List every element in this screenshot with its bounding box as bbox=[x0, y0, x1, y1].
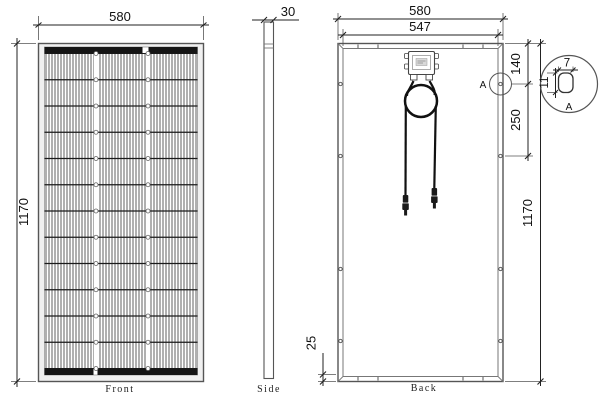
mounting-hole bbox=[499, 267, 502, 270]
cell-pad-circle bbox=[94, 52, 98, 56]
back-height-value: 1170 bbox=[520, 199, 535, 227]
back-width-value: 580 bbox=[409, 3, 431, 18]
back-frame-inner bbox=[343, 49, 498, 377]
side-thickness-dim: 30 bbox=[252, 4, 299, 23]
back-inner-width-dim: 547 bbox=[338, 19, 503, 46]
cell-pad-circle bbox=[146, 209, 150, 213]
cell-pad-circle bbox=[94, 314, 98, 318]
technical-drawing-canvas: 580 1170 Front 30 Side bbox=[0, 0, 600, 400]
side-view-label: Side bbox=[257, 384, 281, 395]
slot-height-value: 11 bbox=[539, 77, 551, 89]
cell-pad-circle bbox=[94, 209, 98, 213]
cell-pad-circle bbox=[146, 235, 150, 239]
mounting-hole bbox=[339, 339, 342, 342]
cable-gland bbox=[426, 75, 433, 81]
slot-width-value: 7 bbox=[564, 58, 570, 70]
solar-panel-drawing: 580 1170 Front 30 Side bbox=[0, 0, 600, 400]
side-thickness-value: 30 bbox=[281, 4, 295, 19]
cell-pad-circle bbox=[146, 367, 150, 371]
cell-pad-circle bbox=[94, 367, 98, 371]
cell-pad-circle bbox=[94, 130, 98, 134]
junction-box-label bbox=[416, 59, 427, 66]
cell-pad-circle bbox=[146, 183, 150, 187]
cable-right bbox=[434, 106, 436, 188]
cell-pad-circle bbox=[94, 78, 98, 82]
detail-label: A bbox=[566, 102, 573, 113]
busbar-strip bbox=[45, 369, 94, 376]
front-height-dim: 1170 bbox=[11, 38, 36, 387]
cell-pad-circle bbox=[94, 288, 98, 292]
front-width-dim: 580 bbox=[33, 9, 209, 40]
front-view: 580 1170 Front bbox=[11, 9, 209, 395]
mounting-hole bbox=[339, 154, 342, 157]
mounting-hole bbox=[339, 82, 342, 85]
front-width-value: 580 bbox=[109, 9, 131, 24]
side-profile bbox=[264, 22, 274, 379]
cell-pad-circle bbox=[94, 235, 98, 239]
mounting-hole bbox=[499, 82, 502, 85]
cell-pad-circle bbox=[146, 130, 150, 134]
mounting-hole bbox=[499, 339, 502, 342]
cell-pad-circle bbox=[146, 157, 150, 161]
cell-pad-circle bbox=[94, 262, 98, 266]
cell-pad-circle bbox=[94, 157, 98, 161]
side-view: 30 Side bbox=[252, 4, 299, 395]
cell-pad-circle bbox=[146, 288, 150, 292]
cell-pad-circle bbox=[94, 340, 98, 344]
front-height-value: 1170 bbox=[16, 198, 31, 226]
busbar-strip bbox=[149, 47, 198, 54]
cell-pad-circle bbox=[146, 52, 150, 56]
cell-pad-circle bbox=[146, 104, 150, 108]
busbar-strip bbox=[45, 47, 143, 54]
section-marker-label: A bbox=[480, 80, 487, 91]
hole-offset-top-value: 140 bbox=[508, 53, 523, 75]
mounting-hole bbox=[499, 154, 502, 157]
mounting-hole bbox=[339, 267, 342, 270]
back-right-dims: 140 250 1170 bbox=[505, 39, 546, 386]
cell-pad-circle bbox=[146, 340, 150, 344]
detail-a-view: 7 11 A bbox=[539, 56, 598, 114]
cell-pad-circle bbox=[94, 183, 98, 187]
frame-depth-dim: 25 bbox=[304, 336, 337, 386]
back-view: A 580 547 140 bbox=[304, 3, 547, 394]
cell-pad-circle bbox=[94, 104, 98, 108]
back-view-label: Back bbox=[411, 383, 438, 394]
cell-pad-circle bbox=[146, 78, 150, 82]
cell-pad-circle bbox=[146, 314, 150, 318]
cell-pad-circle bbox=[146, 262, 150, 266]
cable-gland bbox=[411, 75, 418, 81]
frame-depth-value: 25 bbox=[304, 336, 319, 350]
front-view-label: Front bbox=[105, 384, 134, 395]
hole-spacing-value: 250 bbox=[508, 109, 523, 131]
detail-mounting-slot bbox=[559, 73, 574, 93]
back-inner-width-value: 547 bbox=[409, 19, 431, 34]
